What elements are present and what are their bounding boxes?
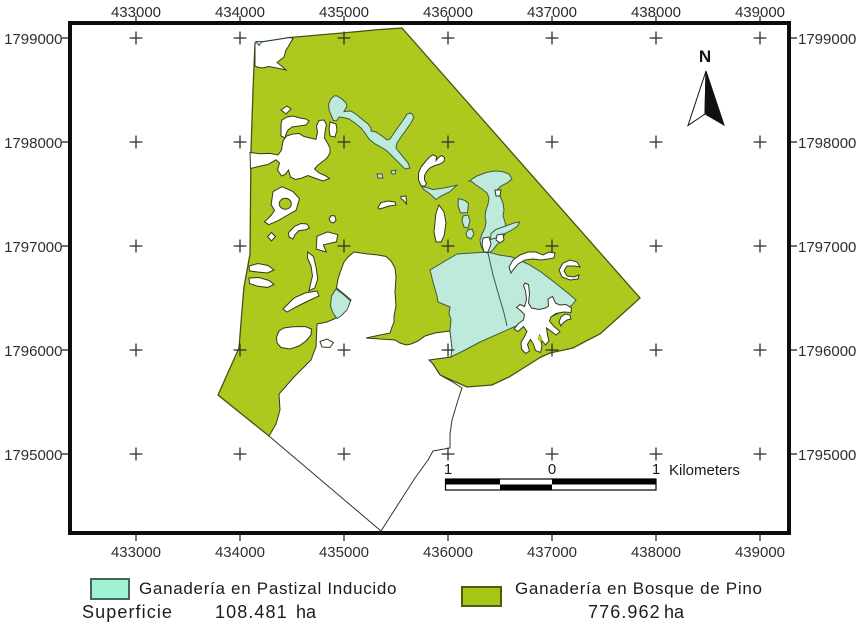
svg-text:433000: 433000 <box>111 4 161 21</box>
svg-text:Kilometers: Kilometers <box>669 462 740 479</box>
svg-text:436000: 436000 <box>423 544 473 561</box>
svg-text:439000: 439000 <box>735 544 785 561</box>
svg-text:1795000: 1795000 <box>4 447 62 464</box>
svg-text:434000: 434000 <box>215 544 265 561</box>
svg-text:ha: ha <box>296 602 317 622</box>
svg-text:776.962: 776.962 <box>588 602 661 622</box>
svg-text:437000: 437000 <box>527 544 577 561</box>
svg-text:1796000: 1796000 <box>4 343 62 360</box>
svg-text:0: 0 <box>548 461 556 478</box>
svg-text:436000: 436000 <box>423 4 473 21</box>
svg-text:435000: 435000 <box>319 544 369 561</box>
svg-text:438000: 438000 <box>631 4 681 21</box>
svg-text:1: 1 <box>652 461 660 478</box>
svg-text:434000: 434000 <box>215 4 265 21</box>
svg-text:1799000: 1799000 <box>4 31 62 48</box>
svg-text:1798000: 1798000 <box>798 135 856 152</box>
svg-text:1798000: 1798000 <box>4 135 62 152</box>
svg-text:N: N <box>699 47 711 66</box>
svg-text:1796000: 1796000 <box>798 343 856 360</box>
svg-text:1797000: 1797000 <box>798 239 856 256</box>
svg-text:Superficie: Superficie <box>82 602 173 622</box>
svg-text:1795000: 1795000 <box>798 447 856 464</box>
svg-text:1797000: 1797000 <box>4 239 62 256</box>
svg-text:108.481: 108.481 <box>215 602 288 622</box>
svg-text:Ganadería en Bosque de Pino: Ganadería en Bosque de Pino <box>515 579 763 598</box>
svg-text:435000: 435000 <box>319 4 369 21</box>
svg-text:438000: 438000 <box>631 544 681 561</box>
svg-text:439000: 439000 <box>735 4 785 21</box>
svg-text:1: 1 <box>444 461 452 478</box>
svg-text:ha: ha <box>664 602 685 622</box>
svg-text:433000: 433000 <box>111 544 161 561</box>
svg-text:437000: 437000 <box>527 4 577 21</box>
svg-text:1799000: 1799000 <box>798 31 856 48</box>
svg-text:Ganadería en Pastizal Inducido: Ganadería en Pastizal Inducido <box>139 579 397 598</box>
